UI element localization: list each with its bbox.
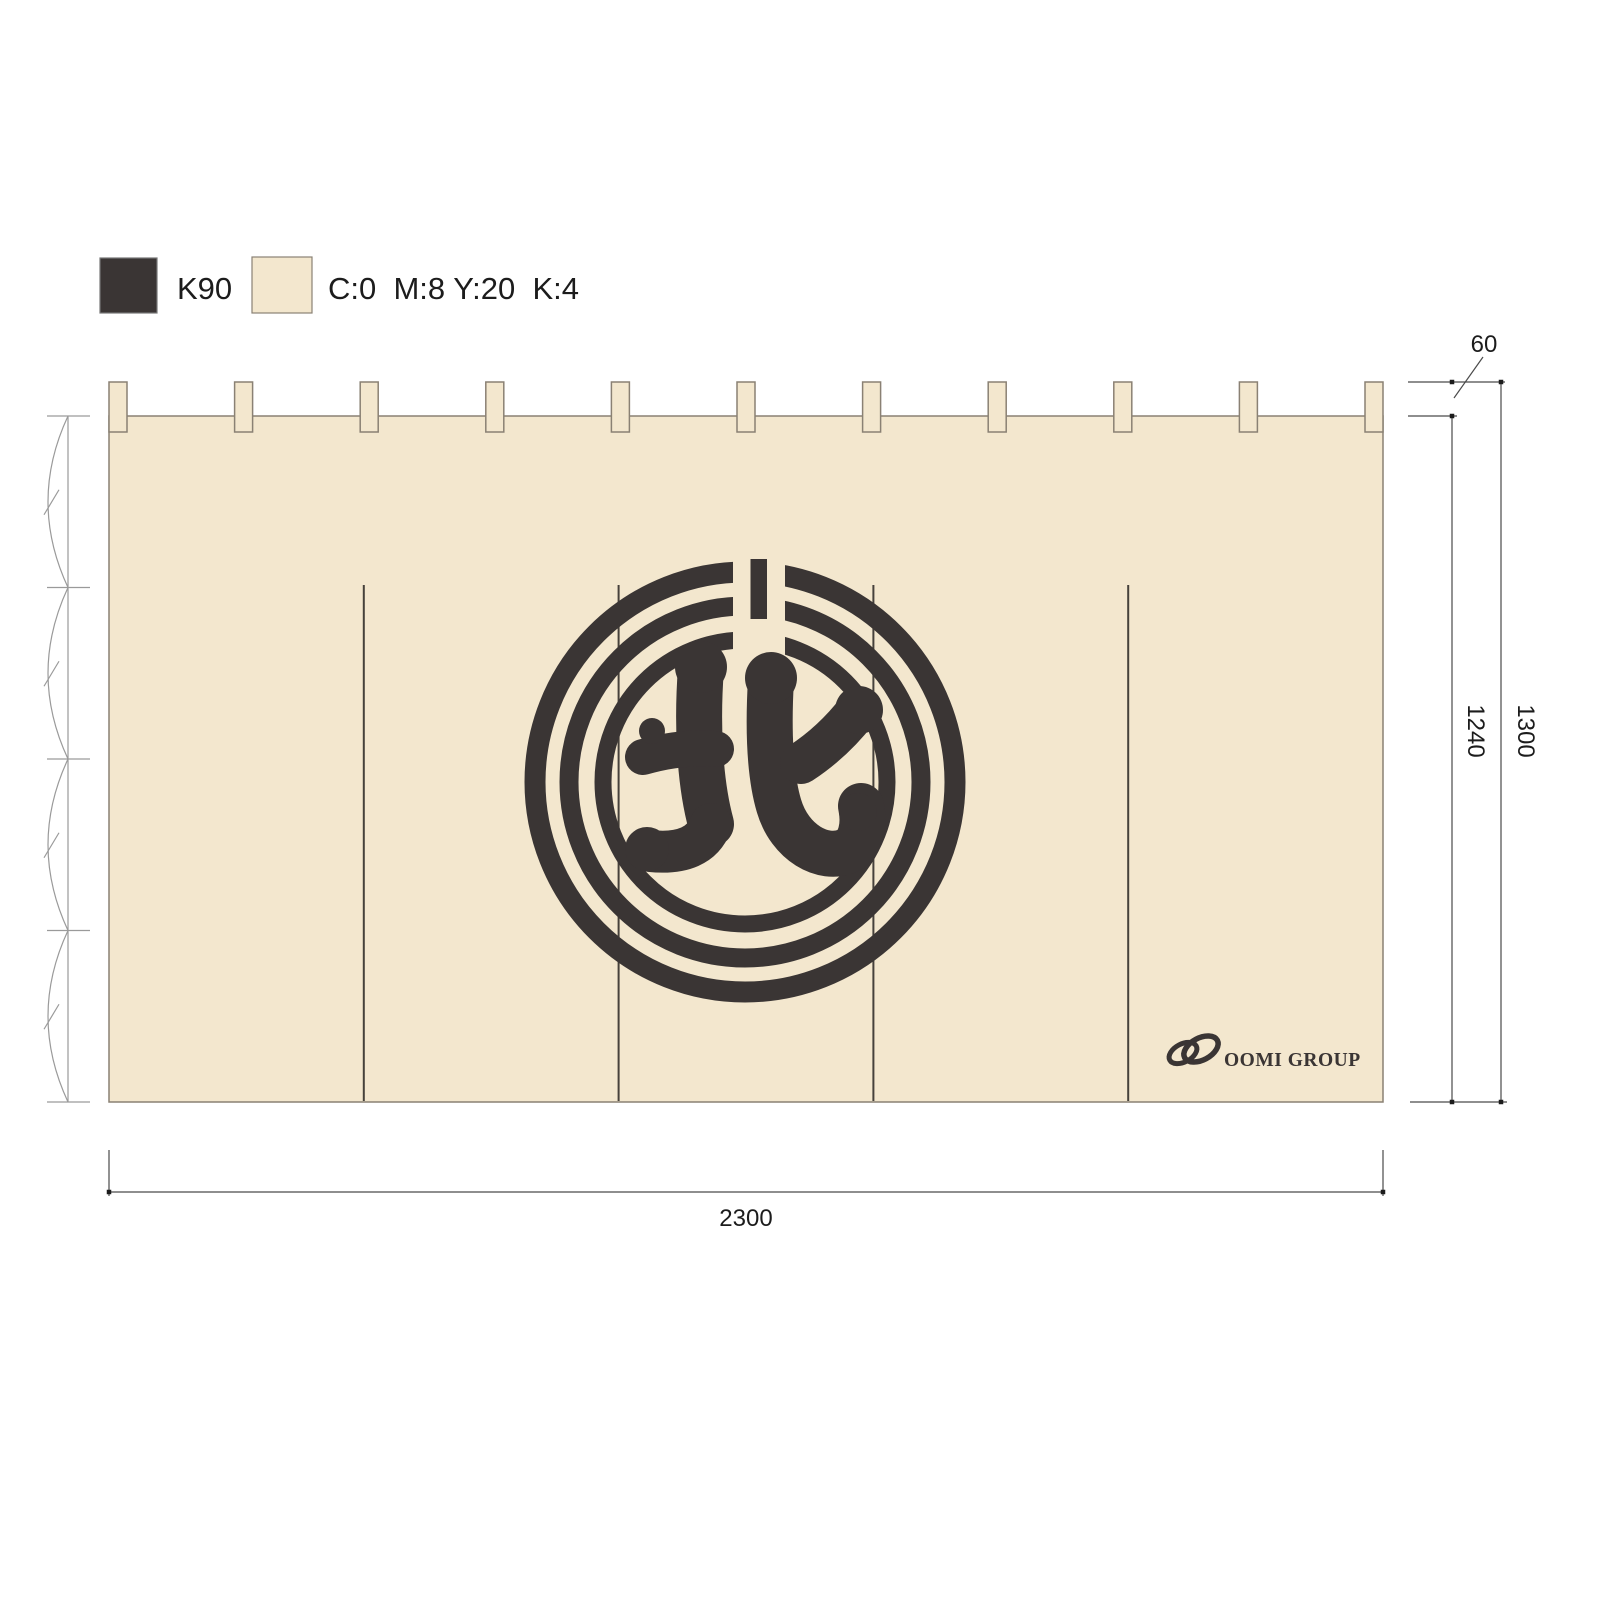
tab xyxy=(988,382,1006,432)
division-arc xyxy=(48,416,68,588)
dim-label-total-height: 1300 xyxy=(1512,704,1539,757)
dim-leader-60 xyxy=(1454,357,1483,398)
tab xyxy=(1239,382,1257,432)
canvas: { "title": "Noren curtain production dra… xyxy=(0,0,1600,1600)
drawing-canvas: K90 C:0 M:8 Y:20 K:4 xyxy=(0,0,1600,1600)
equal-division-marks xyxy=(44,416,90,1102)
legend-swatch-dark xyxy=(100,258,157,313)
tab xyxy=(611,382,629,432)
dim-label-inner-height: 1240 xyxy=(1462,704,1489,757)
tab xyxy=(109,382,127,432)
tab xyxy=(1365,382,1383,432)
tab xyxy=(486,382,504,432)
color-legend: K90 C:0 M:8 Y:20 K:4 xyxy=(100,257,579,313)
tab xyxy=(1114,382,1132,432)
division-arc xyxy=(48,588,68,760)
brand-name: OOMI GROUP xyxy=(1224,1050,1361,1071)
dim-label-width: 2300 xyxy=(719,1205,772,1232)
division-arc xyxy=(48,931,68,1103)
tab xyxy=(360,382,378,432)
crest-top-bar xyxy=(751,559,768,619)
noren-curtain: OOMI GROUP xyxy=(109,382,1383,1102)
dim-label-tab-height: 60 xyxy=(1471,331,1498,358)
tab xyxy=(863,382,881,432)
legend-label-cream: C:0 M:8 Y:20 K:4 xyxy=(328,271,579,306)
tab xyxy=(235,382,253,432)
tab xyxy=(737,382,755,432)
legend-label-dark: K90 xyxy=(177,271,232,306)
division-arc xyxy=(48,759,68,931)
legend-swatch-cream xyxy=(252,257,312,313)
